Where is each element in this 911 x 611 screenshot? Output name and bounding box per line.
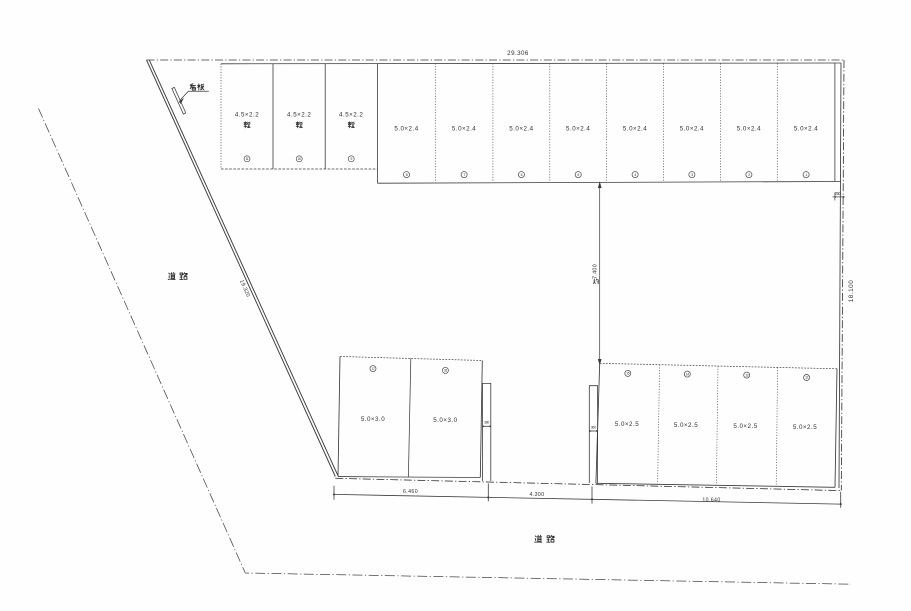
svg-text:360: 360 xyxy=(591,425,596,429)
svg-text:5.0×2.5: 5.0×2.5 xyxy=(793,424,817,431)
svg-text:7.400: 7.400 xyxy=(592,264,598,279)
svg-text:5.0×2.5: 5.0×2.5 xyxy=(615,421,639,428)
svg-text:4.5×2.2: 4.5×2.2 xyxy=(339,112,363,119)
svg-text:5.0×2.4: 5.0×2.4 xyxy=(566,126,590,133)
svg-text:4.5×2.2: 4.5×2.2 xyxy=(287,112,311,119)
svg-text:5.0×2.4: 5.0×2.4 xyxy=(794,126,818,133)
svg-text:5.0×2.5: 5.0×2.5 xyxy=(733,423,757,430)
svg-text:5.0×2.4: 5.0×2.4 xyxy=(680,126,704,133)
svg-text:4.5×2.2: 4.5×2.2 xyxy=(235,112,259,119)
svg-text:18.100: 18.100 xyxy=(848,280,855,303)
svg-text:5.0×2.4: 5.0×2.4 xyxy=(509,126,533,133)
svg-text:5.0×2.4: 5.0×2.4 xyxy=(737,126,761,133)
svg-text:5.0×2.5: 5.0×2.5 xyxy=(674,422,698,429)
svg-text:5.0×2.4: 5.0×2.4 xyxy=(452,126,476,133)
svg-text:5.0×3.0: 5.0×3.0 xyxy=(361,416,385,423)
svg-text:5.0×3.0: 5.0×3.0 xyxy=(433,417,457,424)
svg-text:5.0×2.4: 5.0×2.4 xyxy=(394,126,418,133)
svg-text:250: 250 xyxy=(834,191,841,196)
svg-text:10.640: 10.640 xyxy=(702,498,720,504)
svg-text:4.300: 4.300 xyxy=(530,492,545,498)
svg-text:5.0×2.4: 5.0×2.4 xyxy=(623,126,647,133)
svg-text:6.460: 6.460 xyxy=(403,489,418,495)
svg-text:360: 360 xyxy=(484,421,489,425)
svg-text:29.306: 29.306 xyxy=(507,50,529,57)
